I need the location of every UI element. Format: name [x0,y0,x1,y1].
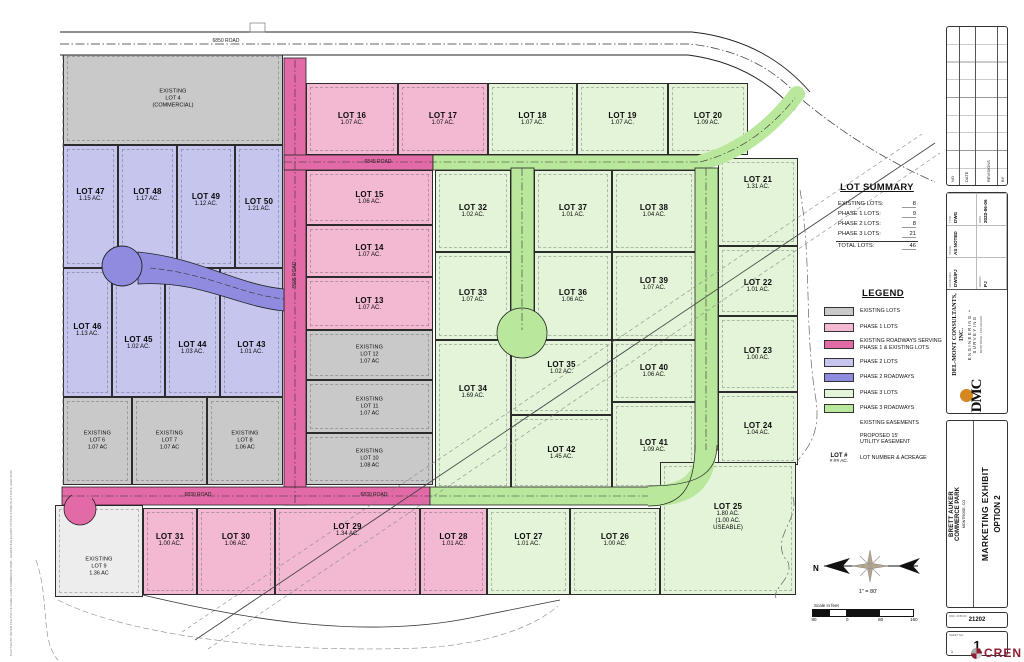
drawing-field: DRAWNPJ [977,257,1007,289]
sheet-title-block: MARKETING EXHIBIT OPTION 2 [974,421,1007,607]
legend-item: PROPOSED 15' UTILITY EASEMENT [824,433,942,446]
sheet-number-caption: SHEET NO. [949,633,964,637]
lot-49 [177,145,235,268]
drawing-field: DATE2022-06-06 [977,193,1007,225]
lot-37 [534,170,612,252]
plot-stamp: PLOTTED BY: PETER FILE PATH & NAME: 2120… [9,470,13,656]
legend-rows: EXISTING LOTSPHASE 1 LOTSEXISTING ROADWA… [824,307,942,464]
drawing-field: DESIGNEDDWS/PJ [947,257,977,289]
lot-12 [306,330,433,380]
plat-map: EXISTINGLOT 4(COMMERCIAL)LOT 471.15 AC.L… [0,0,940,662]
legend-item: EXISTING LOTS [824,307,942,316]
client-block: BRETT AUKER COMMERCE PARK MONTROSE, CO [947,421,974,607]
cren-logo: CREN [971,646,1022,660]
cren-logo-text: CREN [984,646,1022,660]
legend-label: EXISTING ROADWAYS SERVING PHASE 1 & EXIS… [860,338,942,351]
road-label-3: 6830 ROAD [348,492,400,498]
lot-11 [306,380,433,433]
legend-swatch-lot-number: LOT ##.## AC. [824,453,854,465]
lot-summary-rows: EXISTING LOTS:8PHASE 1 LOTS:9PHASE 2 LOT… [836,199,918,252]
legend-label: PHASE 2 LOTS [860,359,898,366]
lot-36 [534,252,612,340]
lot-34 [435,340,511,490]
legend-label: EXISTING EASEMENTS [860,420,919,427]
lot-15 [306,170,433,225]
scale-label: 0 [846,617,849,622]
lot-33 [435,252,511,340]
scale-ratio-text: 1" = 80' [812,589,924,595]
legend-item: EXISTING EASEMENTS [824,420,942,427]
legend-title: LEGEND [824,288,942,299]
north-and-scale-block: N 1" = 80' Scale in feet 80080160 [812,548,924,624]
summary-value: 8 [902,201,916,208]
field-value: 2022-06-06 [983,195,988,223]
legend-swatch-phase3lot [824,389,854,398]
field-value: DWS/PJ [953,259,958,287]
job-number-caption: DMC JOB NO. [949,614,967,618]
lot-summary-row: PHASE 3 LOTS:21 [836,230,918,240]
drawing-field [977,225,1007,257]
lot-summary-row: PHASE 2 LOTS:8 [836,219,918,229]
drawing-fields: DESIGNEDDWS/PJSCALEAS NOTEDTYPEDWGDRAWNP… [947,193,1007,290]
legend-item: LOT ##.## AC.LOT NUMBER & ACREAGE [824,453,942,465]
lot-13 [306,277,433,330]
dmc-logo-text: DMC [969,380,986,413]
legend-label: LOT NUMBER & ACREAGE [860,455,927,462]
lot-22 [718,246,798,316]
legend-item: PHASE 2 LOTS [824,358,942,367]
scale-bar-labels: 80080160 [812,617,916,624]
project-block: BRETT AUKER COMMERCE PARK MONTROSE, CO M… [946,420,1008,608]
lot-32 [435,170,511,252]
lot-38 [612,170,696,252]
scale-bar: Scale in feet 80080160 [812,603,924,624]
legend-label: PHASE 3 ROADWAYS [860,405,914,412]
north-letter: N [813,564,819,573]
lot-50 [235,145,283,268]
lot-6 [63,397,132,485]
lot-4 [63,52,283,145]
lot-25 [660,462,796,595]
lot-summary-row: TOTAL LOTS:46 [836,241,918,252]
company-name-block: DEL-MONT CONSULTANTS, INC. ENGINEERING •… [947,290,1007,379]
legend-label: PHASE 3 LOTS [860,390,898,397]
company-address: MONTROSE • COLORADO [979,290,983,379]
title-block: NODATEREVISIONSBY DMC DEL-MONT CONSULTAN… [946,26,1008,656]
lot-40 [612,340,696,402]
lots-layer [0,0,940,662]
lot-29 [275,508,420,595]
field-caption: SCALE [948,227,952,255]
field-caption: DESIGNED [948,259,952,287]
project-name: COMMERCE PARK [955,421,961,607]
summary-label: PHASE 3 LOTS: [838,231,881,238]
legend-item: EXISTING ROADWAYS SERVING PHASE 1 & EXIS… [824,338,942,351]
field-caption: DRAWN [978,259,982,287]
lot-21 [718,158,798,246]
lot-20 [668,83,748,155]
lot-summary-row: EXISTING LOTS:8 [836,199,918,209]
field-value: DWG [953,195,958,223]
summary-label: PHASE 1 LOTS: [838,211,881,218]
lot-summary-row: PHASE 1 LOTS:9 [836,209,918,219]
revisions-caption-by: BY [1000,177,1005,182]
lot-45 [112,268,165,397]
company-tagline: ENGINEERING • SURVEYING [967,290,977,379]
legend-swatch-phase2road [824,373,854,382]
lot-17 [398,83,488,155]
revisions-table: NODATEREVISIONSBY [946,26,1008,186]
legend-label: PHASE 2 ROADWAYS [860,374,914,381]
summary-value: 9 [902,211,916,218]
sheet-title-option: OPTION 2 [993,421,1002,607]
lot-42 [511,415,612,490]
lot-27 [487,508,570,595]
scale-bar-segments [812,609,914,617]
road-label-1: 6845 ROAD [352,159,404,165]
legend-swatch-phase2lot [824,358,854,367]
scale-label: 80 [811,617,816,622]
road-label-2: 6830 ROAD [172,492,224,498]
lot-18 [488,83,577,155]
revisions-caption-revisions: REVISIONS [986,160,991,182]
lot-23 [718,316,798,392]
legend-label: PHASE 1 LOTS [860,324,898,331]
legend-item: PHASE 3 ROADWAYS [824,404,942,413]
revisions-caption-no: NO [950,176,955,182]
lot-35 [511,340,612,415]
legend-label: PROPOSED 15' UTILITY EASEMENT [860,433,910,446]
company-block: DMC DEL-MONT CONSULTANTS, INC. ENGINEERI… [946,192,1008,414]
lot-28 [420,508,487,595]
company-name: DEL-MONT CONSULTANTS, INC. [951,290,965,379]
legend-swatch-phase3road [824,404,854,413]
drawing-field: TYPEDWG [947,193,977,225]
lot-47 [63,145,118,268]
job-number-box: DMC JOB NO. 21202 [946,612,1008,628]
legend-label: EXISTING LOTS [860,308,900,315]
field-value: PJ [983,259,988,287]
summary-label: TOTAL LOTS: [838,243,874,250]
lot-summary-panel: LOT SUMMARY EXISTING LOTS:8PHASE 1 LOTS:… [836,182,918,252]
sheet-title: MARKETING EXHIBIT [980,421,990,607]
drawing-field: SCALEAS NOTED [947,225,977,257]
legend-swatch-phase1lot [824,323,854,332]
lot-16 [306,83,398,155]
revisions-caption-date: DATE [964,172,969,182]
lot-14 [306,225,433,277]
project-location: MONTROSE, CO [962,421,966,607]
cren-pinwheel-icon [971,648,982,659]
lot-39 [612,252,696,340]
legend-item: PHASE 1 LOTS [824,323,942,332]
legend-swatch-existing [824,307,854,316]
scale-bar-caption: Scale in feet [814,603,924,608]
lot-summary-title: LOT SUMMARY [836,182,918,193]
lot-44 [165,268,220,397]
lot-31 [143,508,197,595]
dmc-logo: DMC [947,379,1007,413]
summary-value: 21 [902,231,916,238]
lot-26 [570,508,660,595]
scale-label: 80 [878,617,883,622]
field-caption: DATE [978,195,982,223]
road-label-4: 6595 ROAD [292,249,298,301]
road-label-0: 6850 ROAD [200,38,252,44]
lot-43 [220,268,283,397]
lot-8 [207,397,283,485]
north-arrow-icon: N [812,548,924,582]
lot-7 [132,397,207,485]
lot-46 [63,268,112,397]
summary-value: 46 [902,243,916,250]
field-value: AS NOTED [953,227,958,255]
lot-9 [55,505,143,597]
lot-48 [118,145,177,268]
lot-19 [577,83,668,155]
lot-10 [306,433,433,485]
legend-item: PHASE 3 LOTS [824,389,942,398]
lot-30 [197,508,275,595]
summary-label: EXISTING LOTS: [838,201,883,208]
legend-panel: LEGEND EXISTING LOTSPHASE 1 LOTSEXISTING… [824,288,942,471]
summary-value: 8 [902,221,916,228]
legend-swatch-phase1road [824,340,854,349]
lot-24 [718,392,798,465]
scale-label: 160 [910,617,918,622]
legend-item: PHASE 2 ROADWAYS [824,373,942,382]
plat-sheet: EXISTINGLOT 4(COMMERCIAL)LOT 471.15 AC.L… [0,0,1024,662]
summary-label: PHASE 2 LOTS: [838,221,881,228]
field-caption: TYPE [948,195,952,223]
sheet-number-sub: 1 [951,650,953,654]
